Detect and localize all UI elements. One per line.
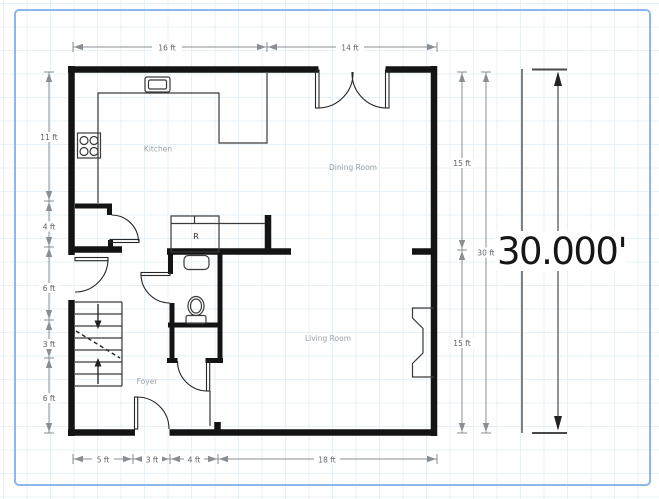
- door-swing-arc: [112, 215, 139, 241]
- dim-label-top-16ft: 16 ft: [158, 44, 175, 53]
- dim-label-right-15ft-a: 15 ft: [453, 159, 470, 168]
- door-leaf: [110, 240, 139, 243]
- door-leaf: [207, 361, 210, 391]
- measurement-arrowhead-down: [554, 416, 562, 431]
- door-swing-arc: [138, 397, 170, 429]
- door-leaf: [141, 273, 170, 276]
- stove[interactable]: [78, 133, 101, 158]
- dim-label-right-30ft: 30 ft: [477, 249, 494, 258]
- door-swing-arc: [75, 259, 108, 292]
- door-swing-arc: [352, 72, 386, 108]
- stairs-down-arrowhead: [95, 321, 102, 330]
- door-leaf: [386, 70, 390, 108]
- dim-label-right-15ft-b: 15 ft: [453, 339, 470, 348]
- room-label-kitchen[interactable]: Kitchen: [144, 145, 172, 154]
- dim-label-left-11ft: 11 ft: [40, 133, 57, 142]
- front-door[interactable]: [135, 397, 170, 429]
- measurement-label[interactable]: 30.000': [497, 230, 626, 273]
- floorplan-svg: R: [0, 0, 659, 499]
- dim-label-left-6ft-b: 6 ft: [43, 394, 56, 403]
- toilet[interactable]: [186, 297, 206, 324]
- bathroom-door[interactable]: [141, 273, 170, 304]
- measurement-arrowhead-up: [554, 72, 562, 87]
- dining-double-door[interactable]: [316, 70, 390, 108]
- toilet-bowl-inner: [191, 299, 202, 313]
- door-leaf: [75, 258, 108, 261]
- refrigerator-counter[interactable]: R: [171, 216, 265, 252]
- dim-label-left-6ft-a: 6 ft: [43, 284, 56, 293]
- refrigerator-label: R: [193, 232, 199, 241]
- dimension-right-split: 15 ft 15 ft: [450, 72, 474, 433]
- dim-label-top-14ft: 14 ft: [341, 44, 358, 53]
- kitchen-counter[interactable]: [98, 73, 267, 203]
- burner: [80, 137, 88, 145]
- staircase[interactable]: [75, 302, 122, 386]
- door-leaf: [316, 70, 320, 108]
- kitchen-hall-door[interactable]: [110, 215, 139, 243]
- dim-label-bottom-18ft: 18 ft: [318, 456, 335, 465]
- dim-label-bottom-5ft: 5 ft: [97, 456, 110, 465]
- toilet-tank: [186, 316, 206, 324]
- measurement-annotation[interactable]: 30.000': [494, 69, 626, 433]
- floorplan-canvas[interactable]: R: [0, 0, 659, 499]
- room-label-foyer[interactable]: Foyer: [137, 377, 159, 386]
- dim-label-left-3ft: 3 ft: [43, 340, 56, 349]
- bathroom-sink[interactable]: [184, 256, 209, 270]
- room-label-living[interactable]: Living Room: [305, 334, 351, 343]
- burner: [80, 148, 88, 156]
- door-swing-arc: [319, 72, 353, 108]
- dimension-right-overall: 30 ft: [475, 72, 497, 433]
- side-entry-door[interactable]: [75, 258, 108, 293]
- door-swing-arc: [178, 361, 208, 391]
- dimension-bottom: 5 ft 3 ft 4 ft 18 ft: [73, 454, 437, 465]
- burner: [90, 148, 98, 156]
- walls[interactable]: [68, 66, 437, 436]
- closet-door[interactable]: [178, 361, 210, 391]
- dim-label-bottom-4ft: 4 ft: [188, 456, 201, 465]
- door-leaf: [135, 397, 138, 429]
- dimension-top: 16 ft 14 ft: [73, 42, 437, 53]
- room-label-dining[interactable]: Dining Room: [329, 163, 377, 172]
- burner: [90, 137, 98, 145]
- stairs-break-line: [76, 331, 120, 358]
- kitchen-sink-basin: [149, 80, 167, 89]
- dim-label-left-4ft: 4 ft: [43, 223, 56, 232]
- dim-label-bottom-3ft: 3 ft: [146, 456, 159, 465]
- dimension-left: 11 ft 4 ft 6 ft 3 ft 6 ft: [38, 72, 60, 433]
- door-swing-arc: [141, 274, 170, 303]
